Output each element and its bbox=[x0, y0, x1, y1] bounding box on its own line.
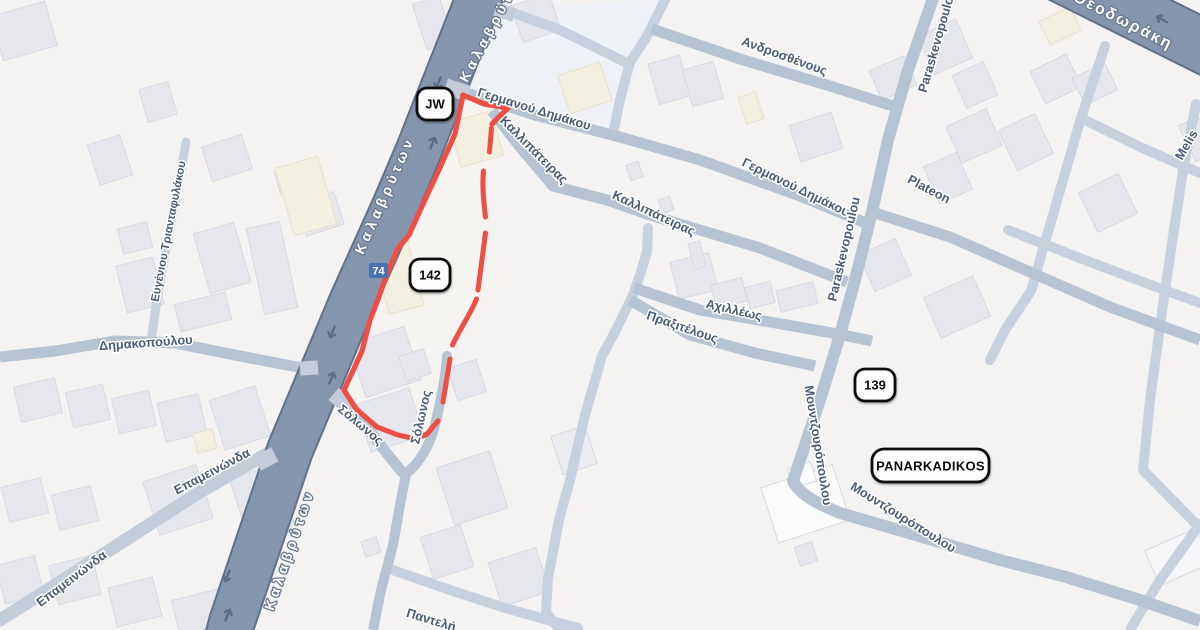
svg-text:PANARKADIKOS: PANARKADIKOS bbox=[876, 459, 985, 474]
svg-text:JW: JW bbox=[425, 97, 445, 112]
svg-text:74: 74 bbox=[372, 266, 385, 278]
svg-text:139: 139 bbox=[864, 378, 886, 393]
svg-text:142: 142 bbox=[419, 268, 441, 283]
